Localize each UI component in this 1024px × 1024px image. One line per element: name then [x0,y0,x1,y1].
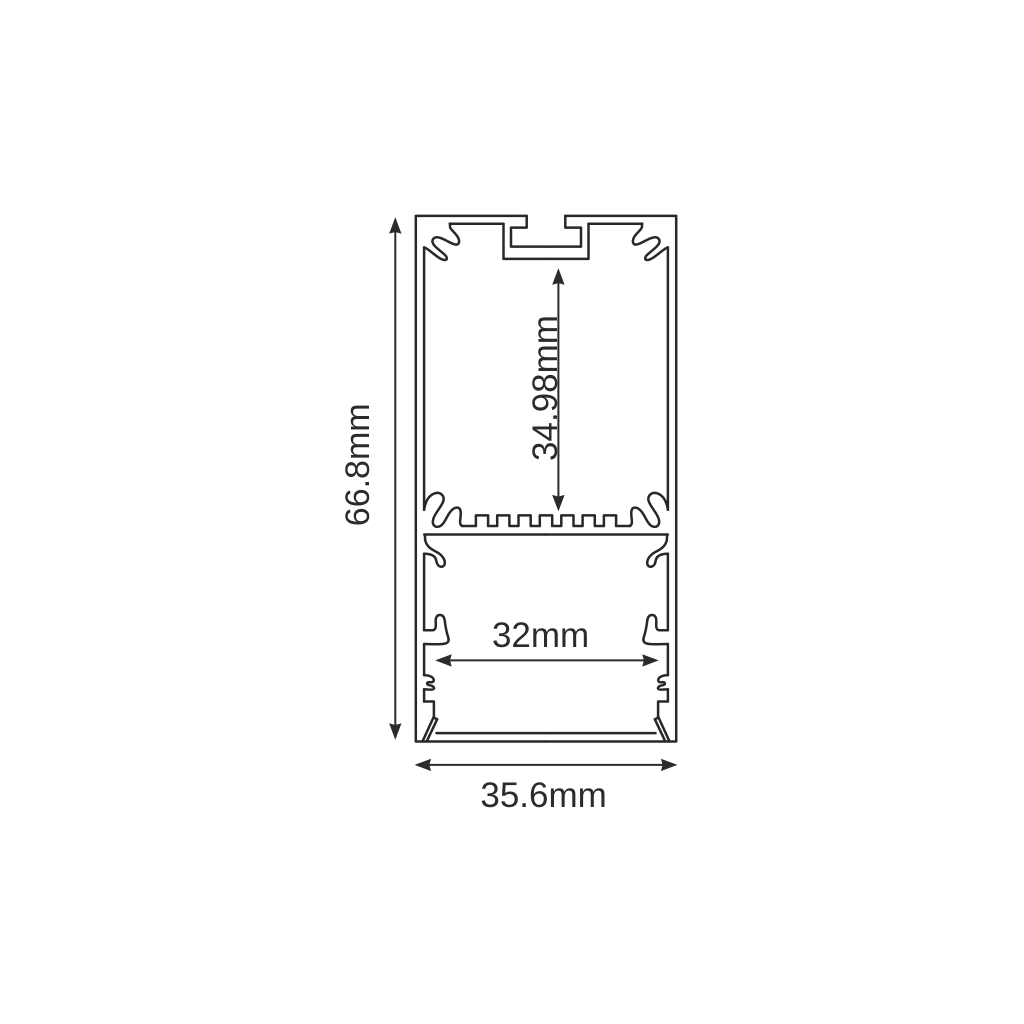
svg-text:66.8mm: 66.8mm [339,403,377,526]
svg-text:32mm: 32mm [492,616,589,655]
svg-text:34.98mm: 34.98mm [526,315,565,461]
svg-text:35.6mm: 35.6mm [480,776,606,815]
